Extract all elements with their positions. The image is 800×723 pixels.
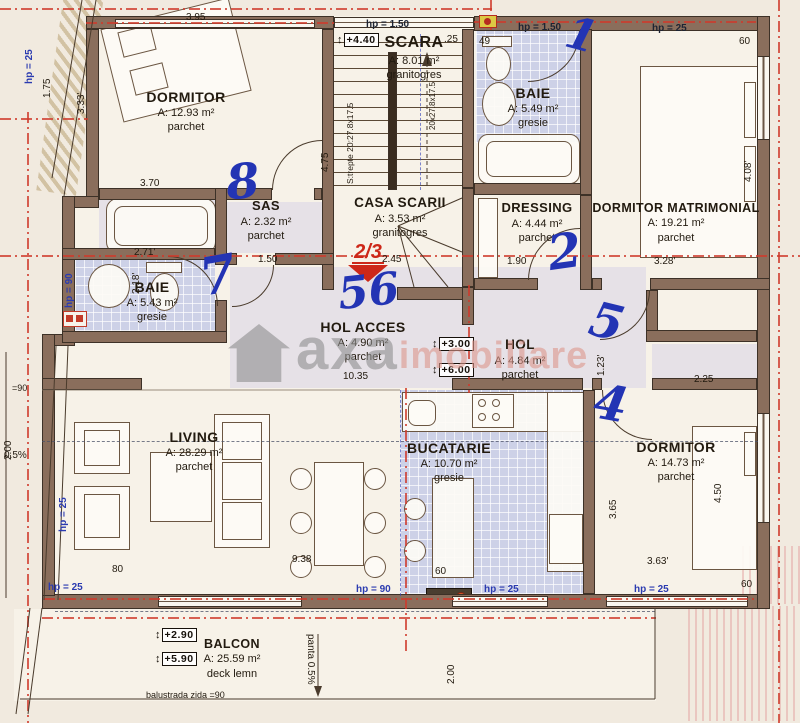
room-area-dormitor-1: A: 12.93 m² — [146, 106, 225, 120]
hp-label-1: hp = 1.50 — [518, 22, 561, 33]
room-floor-baie-2: gresie — [127, 310, 178, 324]
wall-baie2-bottom — [62, 331, 227, 343]
outlet-box-baie2-dot1 — [66, 315, 73, 322]
dimension-label-18: 9.38 — [292, 554, 311, 565]
hp-label-8: hp = 25 — [484, 584, 519, 595]
room-name-bucatarie: BUCATARIE — [407, 439, 491, 457]
room-name-living: LIVING — [166, 428, 223, 446]
kitchen-fridge — [549, 514, 583, 564]
room-label-dormitor-1: DORMITORA: 12.93 m²parchet — [146, 88, 225, 135]
level-arrow-icon: ↕ — [155, 629, 161, 641]
room-floor-hol-acces: parchet — [320, 350, 405, 364]
level-marker-3: ↕+2.90 — [155, 628, 197, 642]
level-marker-4: ↕+5.90 — [155, 652, 197, 666]
stove-burner-3 — [478, 413, 486, 421]
baie1-bathtub-inner — [486, 141, 572, 177]
room-name-hol-acces: HOL ACCES — [320, 318, 405, 336]
room-name-dormitor-matrimonial: DORMITOR MATRIMONIAL — [592, 200, 759, 216]
dimension-label-24: 4.50 — [713, 484, 724, 503]
dimension-label-0: 3.95 — [186, 12, 205, 23]
hp-label-9: hp = 25 — [634, 584, 669, 595]
room-name-casa-scarii: CASA SCARII — [354, 194, 446, 212]
dimension-label-22: 3.65 — [608, 500, 619, 519]
note-label-3: balustrada zida =90 — [146, 690, 225, 700]
level-arrow-icon: ↕ — [337, 34, 343, 46]
room-label-balcon: BALCONA: 25.59 m²deck lemn — [204, 636, 261, 681]
wall-casa-scarii-right — [462, 188, 474, 287]
armchair-1-seat — [84, 430, 120, 466]
room-area-dormitor-matrimonial: A: 19.21 m² — [592, 216, 759, 230]
level-arrow-icon: ↕ — [432, 338, 438, 350]
wall-left-living — [42, 334, 55, 596]
room-floor-baie-1: gresie — [508, 116, 559, 130]
room-area-bucatarie: A: 10.70 m² — [407, 457, 491, 471]
dressing-wardrobe — [478, 198, 498, 278]
dimension-label-5: 2.18' — [131, 273, 142, 294]
level-marker-2: ↕+6.00 — [432, 363, 474, 377]
room-name-balcon: BALCON — [204, 636, 261, 652]
room-area-hol: A: 4.84 m² — [495, 354, 546, 368]
kitchen-sink — [408, 400, 436, 426]
room-name-dressing: DRESSING — [501, 200, 572, 217]
axis-line-horizontal-4 — [474, 21, 756, 23]
baie2-bathtub-inner — [114, 206, 208, 246]
room-floor-balcon: deck lemn — [204, 667, 261, 681]
sofa-cushion-3 — [222, 502, 262, 540]
level-marker-1: ↕+3.00 — [432, 337, 474, 351]
note-label-0: S:trepte 20:27.8x17.5 — [345, 103, 355, 184]
room-area-living: A: 28.29 m² — [166, 446, 223, 460]
room-label-living: LIVINGA: 28.29 m²parchet — [166, 428, 223, 475]
level-value: +6.00 — [439, 363, 474, 377]
dimension-label-1: 1.75 — [42, 79, 53, 98]
room-area-dormitor-2: A: 14.73 m² — [636, 456, 715, 470]
room-area-hol-acces: A: 4.90 m² — [320, 336, 405, 350]
level-value: +3.00 — [439, 337, 474, 351]
axis-line-horizontal-0 — [0, 8, 492, 10]
matrimonial-pillow-1 — [744, 82, 756, 138]
dimension-label-13: 4.08' — [743, 161, 754, 182]
level-marker-0: ↕+4.40 — [337, 33, 379, 47]
room-floor-sas: parchet — [241, 229, 292, 243]
kitchen-island — [432, 478, 474, 578]
dining-chair-1 — [290, 468, 312, 490]
dimension-label-15: 10.35 — [343, 371, 368, 382]
room-name-baie-1: BAIE — [508, 84, 559, 102]
armchair-2-seat — [84, 494, 120, 538]
window-dormitor2-right — [757, 413, 770, 523]
baie1-toilet-bowl — [486, 47, 511, 81]
level-arrow-icon: ↕ — [432, 364, 438, 376]
floor-plan-scan: DORMITORA: 12.93 m²parchetSCARAA: 8.01 m… — [0, 0, 800, 723]
dimension-label-23: 60 — [741, 579, 752, 590]
room-label-baie-1: BAIEA: 5.49 m²gresie — [508, 84, 559, 131]
room-floor-scara: granitogres — [385, 68, 444, 82]
room-label-hol-acces: HOL ACCESA: 4.90 m²parchet — [320, 318, 405, 365]
room-floor-dormitor-matrimonial: parchet — [592, 231, 759, 245]
dimension-label-19: 80 — [112, 564, 123, 575]
blue-dash-line-0 — [400, 390, 401, 596]
bar-chair-2 — [404, 540, 426, 562]
scan-streaks-balcony — [688, 606, 800, 721]
room-label-hol: HOLA: 4.84 m²parchet — [495, 336, 546, 382]
room-label-bucatarie: BUCATARIEA: 10.70 m²gresie — [407, 439, 491, 486]
handwritten-mark-4: 56 — [336, 267, 401, 317]
dimension-label-14: 4.75 — [320, 153, 331, 172]
room-name-hol: HOL — [495, 336, 546, 354]
note-label-2: panta 0.5% — [305, 634, 316, 685]
handwritten-mark-0: 8 — [224, 157, 261, 208]
hp-label-2: hp = 25 — [652, 23, 687, 34]
hp-label-3: hp = 25 — [24, 49, 35, 84]
dimension-label-20: 60 — [435, 566, 446, 577]
room-floor-dormitor-2: parchet — [636, 470, 715, 484]
dimension-label-11: 3.28' — [654, 256, 675, 267]
dining-chair-2 — [290, 512, 312, 534]
dormitor2-pillow — [744, 432, 756, 476]
hp-label-0: hp = 1.50 — [366, 19, 409, 30]
room-area-sas: A: 2.32 m² — [241, 215, 292, 229]
dimension-label-8: .25 — [444, 34, 458, 45]
hp-label-5: hp = 90 — [64, 273, 75, 308]
dining-chair-5 — [364, 512, 386, 534]
note-label-4: 0.5% — [4, 450, 27, 461]
room-floor-living: parchet — [166, 460, 223, 474]
axis-line-vertical-2 — [405, 388, 407, 654]
wall-left-upper — [86, 29, 99, 200]
room-label-dormitor-matrimonial: DORMITOR MATRIMONIALA: 19.21 m²parchet — [592, 200, 759, 245]
wall-scara-baie1 — [462, 29, 474, 188]
outlet-box-baie2-dot2 — [76, 315, 83, 322]
room-name-dormitor-1: DORMITOR — [146, 88, 225, 106]
baie2-sink — [88, 264, 130, 308]
dimension-label-17: 2.25 — [694, 374, 713, 385]
dimension-label-4: 2.71' — [134, 247, 155, 258]
wall-hol-right-h — [646, 330, 757, 342]
level-arrow-icon: ↕ — [155, 653, 161, 665]
dimension-label-9: 49 — [479, 36, 490, 47]
room-floor-dormitor-1: parchet — [146, 120, 225, 134]
outside-patch-left — [42, 196, 62, 334]
room-name-scara: SCARA — [385, 33, 444, 54]
axis-line-horizontal-5 — [86, 22, 334, 24]
handwritten-mark-2: 2 — [545, 226, 585, 278]
level-value: +2.90 — [162, 628, 197, 642]
hp-label-7: hp = 90 — [356, 584, 391, 595]
axis-line-horizontal-3 — [44, 598, 756, 600]
dimension-label-6: 1.50 — [258, 254, 277, 265]
room-area-scara: A: 8.01 m² — [385, 54, 444, 68]
dimension-label-26: 2.00 — [446, 665, 457, 684]
room-label-scara: SCARAA: 8.01 m²granitogres — [385, 33, 444, 82]
sofa-cushion-2 — [222, 462, 262, 500]
room-name-dormitor-2: DORMITOR — [636, 438, 715, 456]
room-area-baie-1: A: 5.49 m² — [508, 102, 559, 116]
dimension-label-21: 3.63' — [647, 556, 668, 567]
wall-baie1-bottom — [474, 183, 592, 195]
level-value: +4.40 — [344, 33, 379, 47]
axis-line-vertical-4 — [778, 0, 780, 723]
dimension-label-3: 3.70 — [140, 178, 159, 189]
bar-chair-1 — [404, 498, 426, 520]
note-label-1: 20x27.8x17.5 — [428, 82, 437, 130]
room-floor-casa-scarii: granitogres — [354, 226, 446, 240]
stove-burner-4 — [492, 413, 500, 421]
hol-ext-floor-wash — [652, 344, 757, 378]
dimension-label-2: 3.33' — [76, 93, 87, 114]
dining-chair-4 — [364, 468, 386, 490]
axis-line-horizontal-1 — [0, 118, 88, 120]
dimension-label-16: 1.23' — [596, 355, 607, 376]
section-dash-line-1 — [55, 611, 655, 612]
room-floor-hol: parchet — [495, 368, 546, 382]
hp-label-4: hp = 25 — [58, 497, 69, 532]
axis-line-horizontal-6 — [42, 617, 656, 619]
room-floor-bucatarie: gresie — [407, 471, 491, 485]
room-label-dormitor-2: DORMITORA: 14.73 m²parchet — [636, 438, 715, 485]
balcony-floor-area — [14, 609, 656, 701]
dining-chair-6 — [364, 556, 386, 578]
room-area-casa-scarii: A: 3.53 m² — [354, 212, 446, 226]
axis-line-vertical-0 — [27, 112, 29, 723]
room-area-baie-2: A: 5.43 m² — [127, 296, 178, 310]
section-marker-label: 2/3 — [352, 242, 384, 264]
note-label-5: =90 — [12, 383, 27, 393]
wall-living-top — [42, 378, 142, 390]
window-matrimonial-right — [757, 56, 770, 140]
dimension-label-10: 1.90 — [507, 256, 526, 267]
wall-matrimonial-bottom-b — [650, 278, 770, 290]
dimension-label-12: 60 — [739, 36, 750, 47]
wall-matrimonial-bottom-a — [592, 278, 602, 290]
electric-box-top-dot — [484, 18, 491, 25]
stove-burner-2 — [492, 399, 500, 407]
level-value: +5.90 — [162, 652, 197, 666]
hp-label-6: hp = 25 — [48, 582, 83, 593]
dining-table — [314, 462, 364, 566]
stove-burner-1 — [478, 399, 486, 407]
room-label-casa-scarii: CASA SCARIIA: 3.53 m²granitogres — [354, 194, 446, 240]
room-area-balcon: A: 25.59 m² — [204, 652, 261, 666]
